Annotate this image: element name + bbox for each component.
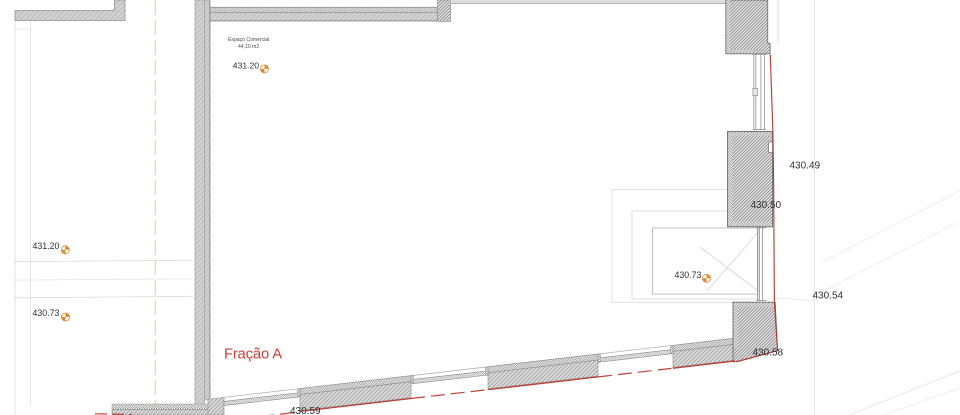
svg-text:Fração A: Fração A xyxy=(224,347,282,363)
svg-text:431.20: 431.20 xyxy=(233,61,260,71)
svg-text:44,10 m2: 44,10 m2 xyxy=(238,44,259,50)
svg-text:430.59: 430.59 xyxy=(290,406,321,415)
svg-text:430.73: 430.73 xyxy=(675,270,702,280)
svg-text:430.49: 430.49 xyxy=(790,161,821,172)
svg-text:430.50: 430.50 xyxy=(751,200,782,211)
svg-text:430.54: 430.54 xyxy=(813,291,844,302)
svg-text:431.20: 431.20 xyxy=(33,241,60,251)
svg-text:Espaço Comercial: Espaço Comercial xyxy=(228,37,269,43)
svg-text:430.73: 430.73 xyxy=(33,308,60,318)
svg-text:430.58: 430.58 xyxy=(753,348,784,359)
